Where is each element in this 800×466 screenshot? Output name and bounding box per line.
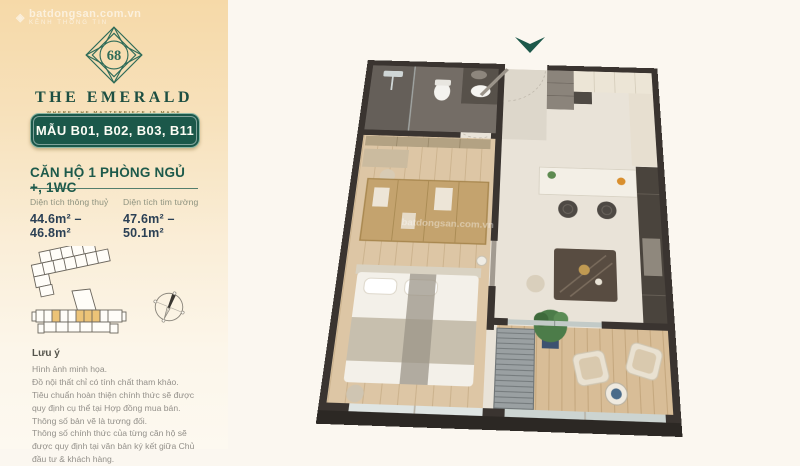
note-line: Tiêu chuẩn hoàn thiện chính thức sẽ được…	[32, 389, 204, 415]
desk	[362, 149, 409, 168]
entry-floor	[502, 69, 547, 140]
watermark-text: batdongsan.com.vn	[29, 8, 141, 20]
area-wall-label: Diện tích tim tường	[123, 197, 206, 207]
compass-icon	[150, 288, 188, 326]
site-plan-locator	[28, 246, 130, 336]
page: { "watermark": { "text": "batdongsan.com…	[0, 0, 800, 449]
hanging-clothes	[434, 188, 453, 211]
legal-notes: Lưu ý Hình ảnh minh họa. Đồ nội thất chỉ…	[32, 348, 204, 466]
area-wall-value: 47.6m² – 50.1m²	[123, 212, 206, 240]
pillow	[363, 278, 397, 295]
area-clear-label: Diện tích thông thuỷ	[30, 197, 113, 207]
title-divider	[30, 188, 198, 189]
kitchen-cabinets-top	[574, 71, 653, 94]
tower-upper-wing	[29, 246, 114, 297]
model-badge-label: MẪU B01, B02, B03, B11	[36, 123, 194, 138]
notes-title: Lưu ý	[32, 348, 204, 359]
hanging-clothes	[372, 187, 390, 207]
hall-cabinet	[547, 70, 574, 110]
media-bench	[642, 238, 662, 276]
area-clear-value: 44.6m² – 46.8m²	[30, 212, 113, 240]
diamond-68-logo-icon: 68	[83, 24, 145, 86]
floor-plan-3d: batdongsan.com.vn	[316, 60, 683, 437]
project-logo: 68 THE EMERALD WHERE THE MASTERPIECE IS …	[0, 24, 228, 115]
floor-lamp	[476, 256, 487, 266]
ac-louver	[494, 328, 535, 410]
area-specs: Diện tích thông thuỷ 44.6m² – 46.8m² Diệ…	[30, 197, 206, 240]
note-line: Thông số chính thức của từng căn hộ sẽ đ…	[32, 427, 204, 466]
watermark-diamond-icon: ◈	[16, 11, 25, 24]
info-panel: ◈ batdongsan.com.vn KÊNH THÔNG TIN 68 TH…	[0, 0, 228, 449]
area-clear: Diện tích thông thuỷ 44.6m² – 46.8m²	[30, 197, 113, 240]
note-line: Đồ nội thất chỉ có tính chất tham khảo.	[32, 376, 204, 389]
logo-number: 68	[107, 48, 121, 64]
highlighted-units	[76, 310, 100, 322]
shower-head	[383, 71, 403, 77]
cooktop	[574, 92, 592, 105]
bathroom	[364, 65, 498, 133]
floor-plan-render	[316, 60, 683, 437]
highlighted-unit	[52, 310, 60, 322]
note-line: Thông số bản vẽ là tương đối.	[32, 415, 204, 428]
unit-type-title: CĂN HỘ 1 PHÒNG NGỦ +, 1WC	[30, 165, 200, 195]
floor-plan-area: batdongsan.com.vn	[292, 4, 722, 449]
area-wall: Diện tích tim tường 47.6m² – 50.1m²	[123, 197, 206, 240]
logo-title: THE EMERALD	[0, 89, 228, 107]
model-badge: MẪU B01, B02, B03, B11	[30, 113, 200, 148]
note-line: Hình ảnh minh họa.	[32, 363, 204, 376]
tower-core	[72, 289, 96, 312]
